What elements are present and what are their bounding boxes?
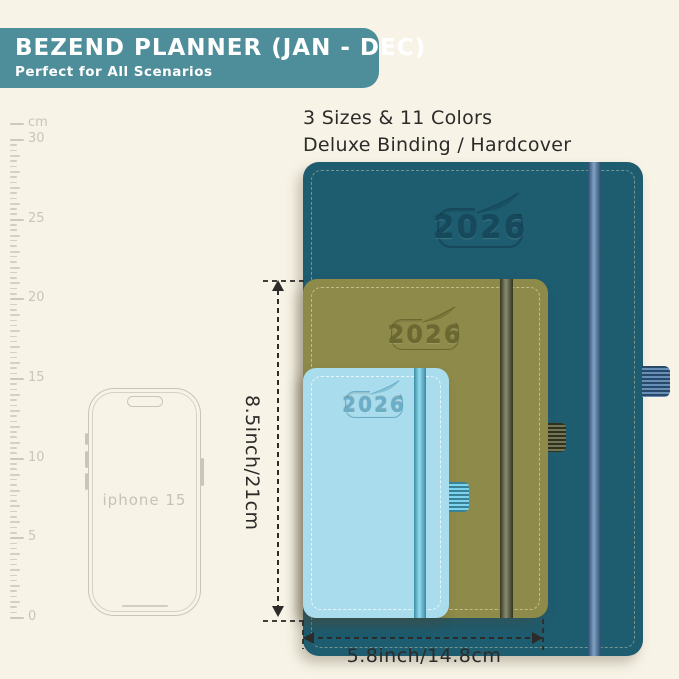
ruler-tick [10,367,17,369]
ruler-tick [10,564,17,566]
ruler-tick [10,505,20,507]
ruler-tick [10,463,17,465]
year-text: 2026 [342,395,406,415]
power-button-icon [201,458,204,486]
year-logo: 2026 [437,208,523,248]
ruler-tick [10,405,17,407]
ruler-tick [10,213,17,215]
arrow-left-icon [303,632,314,644]
ruler-tick [10,447,17,449]
ruler-tick [10,516,17,518]
ruler-tick [10,431,17,433]
ruler-tick [10,261,17,263]
ruler-tick [10,314,20,316]
height-dimension-line [277,290,279,608]
ruler-tick [10,203,20,205]
ruler-tick [10,452,17,454]
title-banner: BEZEND PLANNER (JAN - DEC) Perfect for A… [0,28,379,88]
ruler-tick [10,235,20,237]
iphone-label: iphone 15 [89,491,200,509]
ruler-tick [10,198,17,200]
banner-title: BEZEND PLANNER (JAN - DEC) [15,35,379,61]
ruler-tick [10,166,17,168]
ruler-tick [10,426,20,428]
ruler-tick [10,606,17,608]
feature-line-sizes: 3 Sizes & 11 Colors [303,105,571,132]
ruler-tick [10,585,20,587]
ruler: 051015202530cm [10,110,72,635]
ruler-tick [10,219,24,221]
ruler-tick [10,123,24,125]
ruler-label: 20 [28,291,54,305]
ruler-tick [10,458,24,460]
ruler-tick [10,251,20,253]
ruler-tick [10,320,17,322]
ruler-tick [10,346,20,348]
year-logo: 2026 [391,319,459,350]
iphone-outline: iphone 15 [88,388,201,616]
feature-text: 3 Sizes & 11 Colors Deluxe Binding / Har… [303,105,571,159]
ruler-tick [10,521,20,523]
ruler-label: 15 [28,371,54,385]
ruler-tick [10,272,17,274]
planner-small-blue: 2026 [303,368,449,618]
dynamic-island-icon [127,396,163,407]
ruler-tick [10,415,17,417]
ruler-tick [10,495,17,497]
ruler-tick [10,330,20,332]
ruler-tick [10,224,17,226]
ruler-tick [10,208,17,210]
ruler-tick [10,580,17,582]
ruler-tick [10,341,17,343]
ruler-tick [10,500,17,502]
home-indicator-icon [122,605,168,607]
ruler-tick [10,474,20,476]
ruler-tick [10,543,17,545]
ruler-tick [10,155,20,157]
ruler-tick [10,176,17,178]
ruler-tick [10,304,17,306]
arrow-down-icon [272,606,284,617]
ruler-label: 10 [28,451,54,465]
ruler-tick [10,309,17,311]
ruler-tick [10,399,17,401]
ruler-label: 30 [28,132,54,146]
height-dimension-label: 8.5inch/21cm [241,395,263,531]
ruler-tick [10,144,17,146]
ruler-tick [10,325,17,327]
elastic-band [414,368,426,618]
product-infographic: BEZEND PLANNER (JAN - DEC) Perfect for A… [0,0,679,679]
dimension-extension-line [263,280,305,282]
ruler-label: 0 [28,610,54,624]
year-logo: 2026 [345,391,403,418]
ruler-tick [10,548,17,550]
ruler-tick [10,601,20,603]
ruler-tick [10,436,17,438]
elastic-band [500,279,513,618]
ruler-tick [10,378,24,380]
ruler-tick [10,511,17,513]
ruler-tick [10,160,17,162]
ruler-tick [10,559,17,561]
arrow-up-icon [272,280,284,291]
width-dimension-label: 5.8inch/14.8cm [324,645,524,667]
ruler-tick [10,182,17,184]
ruler-tick [10,596,17,598]
ruler-tick [10,383,17,385]
ruler-tick [10,150,17,152]
ruler-tick [10,468,17,470]
arrow-right-icon [532,632,543,644]
elastic-band [588,162,601,656]
ruler-label: cm [28,116,54,130]
ruler-tick [10,553,20,555]
ruler-tick [10,267,20,269]
ruler-tick [10,139,24,141]
ruler-tick [10,336,17,338]
ruler-tick [10,373,17,375]
volume-down-button-icon [85,473,88,490]
pen-loop [548,423,566,452]
ruler-tick [10,527,17,529]
width-dimension-line [309,637,536,639]
feather-icon [422,306,456,323]
ruler-label: 5 [28,530,54,544]
ruler-tick [10,617,24,619]
ruler-tick [10,590,17,592]
ruler-tick [10,575,17,577]
ruler-tick [10,352,17,354]
ruler-tick [10,240,17,242]
ruler-label: 25 [28,212,54,226]
ruler-tick [10,362,20,364]
ruler-tick [10,277,17,279]
ruler-tick [10,442,20,444]
dimension-extension-line [263,620,305,622]
volume-up-button-icon [85,451,88,468]
ruler-tick [10,532,17,534]
ruler-tick [10,288,17,290]
pen-loop [642,366,670,397]
ruler-tick [10,490,20,492]
ruler-tick [10,171,20,173]
ruler-tick [10,569,20,571]
banner-subtitle: Perfect for All Scenarios [15,64,379,80]
ruler-tick [10,229,17,231]
ruler-tick [10,389,17,391]
ruler-tick [10,298,24,300]
feather-icon [370,380,400,395]
ruler-tick [10,394,20,396]
feather-icon [475,192,521,214]
ruler-tick [10,410,20,412]
ruler-tick [10,479,17,481]
feature-line-binding: Deluxe Binding / Hardcover [303,132,571,159]
ruler-tick [10,484,17,486]
ruler-tick [10,282,20,284]
ruler-tick [10,537,24,539]
ruler-tick [10,256,17,258]
ruler-tick [10,357,17,359]
ruler-tick [10,187,20,189]
ruler-tick [10,293,17,295]
ruler-tick [10,612,17,614]
pen-loop [449,482,469,512]
year-text: 2026 [388,323,463,347]
ruler-tick [10,245,17,247]
ruler-tick [10,192,17,194]
mute-switch-icon [85,433,88,445]
ruler-tick [10,421,17,423]
year-text: 2026 [433,213,527,244]
